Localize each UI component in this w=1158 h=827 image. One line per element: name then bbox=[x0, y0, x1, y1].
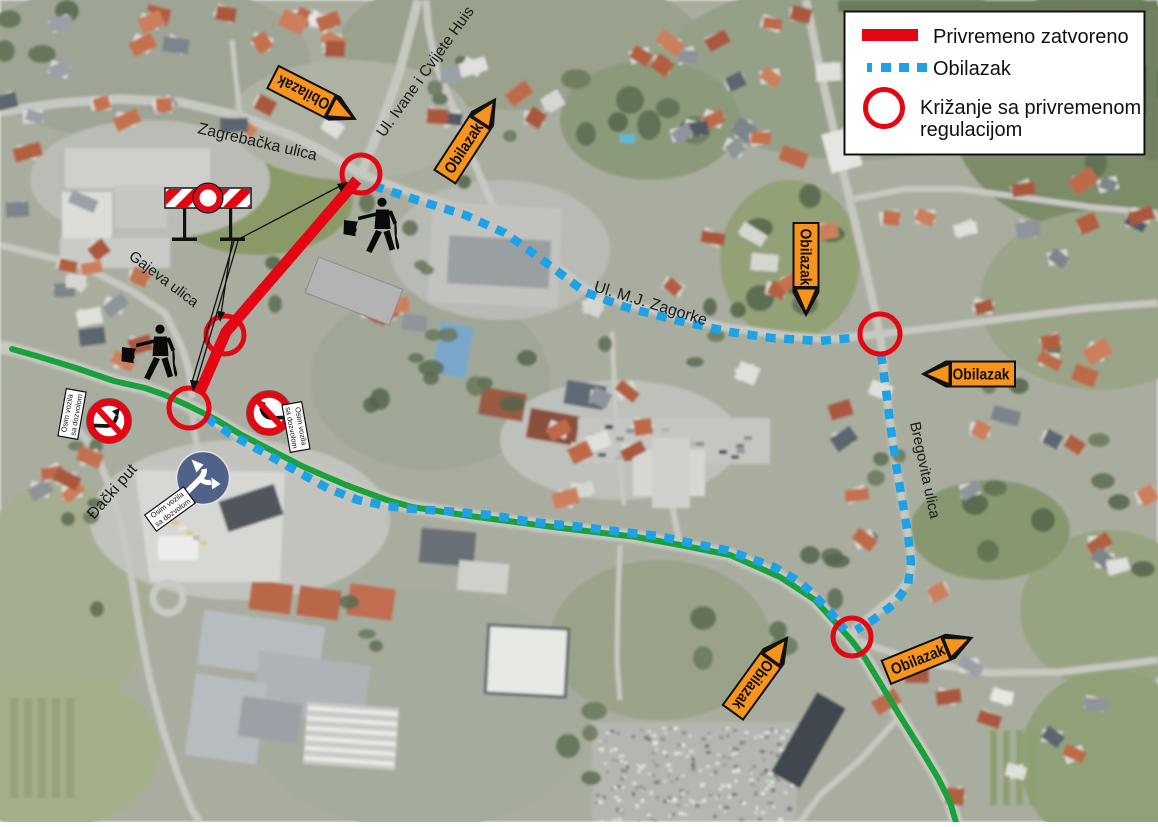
svg-text:Privremeno zatvoreno: Privremeno zatvoreno bbox=[933, 26, 1129, 48]
svg-text:Obilazak: Obilazak bbox=[933, 58, 1012, 80]
svg-text:Obilazak: Obilazak bbox=[797, 229, 814, 286]
svg-text:Obilazak: Obilazak bbox=[953, 366, 1010, 383]
svg-text:Križanje sa privremenom: Križanje sa privremenom bbox=[920, 97, 1141, 119]
svg-text:regulacijom: regulacijom bbox=[920, 119, 1022, 141]
